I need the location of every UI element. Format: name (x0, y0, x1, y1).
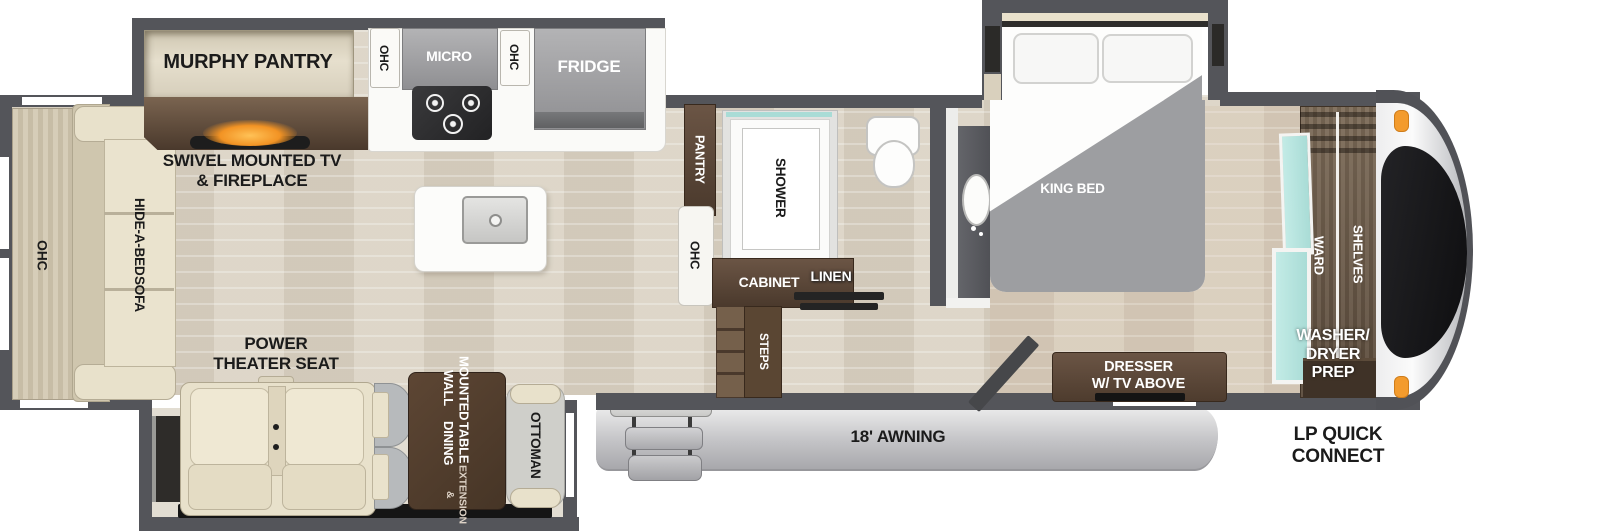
fireplace-glow (203, 120, 297, 146)
rear-left-window-1 (0, 157, 9, 249)
wardrobe-hanger-area (1300, 112, 1380, 160)
rear-left-window-2 (0, 258, 9, 350)
steps-label: STEPS (744, 310, 780, 392)
linen-label: LINEN (796, 264, 866, 288)
bath-counter-edge (946, 108, 958, 308)
mirror-door-upper (1279, 132, 1314, 255)
stove-burner-icon-3 (443, 114, 463, 134)
theater-seat-cushion-left (188, 464, 272, 510)
shower-text: SHOWER (772, 158, 788, 218)
sofa-label-line2: SOFA (131, 276, 147, 312)
theater-line1: POWER (244, 334, 307, 354)
micro-text: MICRO (426, 48, 472, 65)
dining-line2: DINING TABLE (441, 421, 472, 465)
vanity-faucet-icon (971, 226, 976, 231)
wall-rear-slide-left (0, 95, 12, 410)
dining-line1: WALL MOUNTED (441, 356, 472, 420)
marker-light-top-icon (1394, 110, 1409, 132)
cupholder-icon-2 (273, 444, 279, 450)
shower-glass-accent (726, 112, 832, 117)
fridge-text: FRIDGE (557, 57, 620, 77)
wall-bottomslide-left (139, 400, 152, 531)
rear-ohc-label: OHC (24, 215, 60, 295)
wall-bottomslide-bottom (139, 517, 579, 531)
wall-bedslide-top (982, 0, 1228, 13)
awning-label: 18' AWNING (798, 427, 998, 447)
wd-line3: PREP (1312, 364, 1355, 383)
bedroom-steps-tread-2 (716, 350, 744, 353)
slide-tv-icon (152, 416, 180, 502)
kitchen-ohc-left-text: OHC (377, 45, 391, 71)
washer-dryer-label: WASHER/ DRYER PREP (1280, 322, 1386, 388)
dresser-line1: DRESSER (1104, 359, 1173, 376)
theater-seat-label: POWER THEATER SEAT (190, 332, 362, 376)
theater-console (268, 386, 286, 476)
dining-chair-1-cushion (372, 392, 389, 438)
kitchen-ohc-right-text: OHC (507, 44, 521, 70)
theater-line2: THEATER SEAT (213, 354, 338, 374)
swivel-line1: SWIVEL MOUNTED TV (163, 151, 342, 171)
kitchen-ohc-right-label: OHC (500, 33, 528, 81)
pantry-text: PANTRY (692, 135, 707, 184)
fridge-label: FRIDGE (534, 56, 644, 78)
shelves-label: SHELVES (1343, 198, 1373, 310)
bedroom-steps-tread-3 (716, 372, 744, 375)
wd-line1: WASHER/ (1296, 327, 1369, 346)
cupholder-icon-1 (273, 424, 279, 430)
pillow-left-icon (1013, 33, 1099, 84)
nightstand-left (984, 74, 1001, 100)
awning-text: 18' AWNING (851, 427, 946, 447)
murphy-pantry-text: MURPHY PANTRY (163, 51, 332, 75)
theater-seat-cushion-right (282, 464, 366, 510)
vanity-sink-icon (962, 174, 991, 226)
bed-headwall-trim (1002, 13, 1208, 21)
dresser-label: DRESSER W/ TV ABOVE (1054, 356, 1223, 396)
sofa-label: HIDE-A-BED SOFA (106, 190, 172, 320)
dresser-line2: W/ TV ABOVE (1092, 376, 1185, 393)
bath-ohc-label: OHC (678, 210, 712, 300)
king-bed-label: KING BED (990, 180, 1155, 198)
murphy-pantry-label: MURPHY PANTRY (146, 48, 350, 78)
dining-chair-2-cushion (372, 454, 389, 500)
swivel-line2: & FIREPLACE (196, 171, 307, 191)
marker-light-bottom-icon (1394, 376, 1409, 398)
dining-line3: & EXTENSION (444, 465, 469, 524)
rv-floorplan: 18' AWNING LP QUICK CONNECT OHC (0, 0, 1600, 531)
stove-burner-icon-1 (426, 94, 444, 112)
dining-table-label: WALL MOUNTED DINING TABLE & EXTENSION (412, 376, 500, 504)
cabinet-text: CABINET (739, 274, 800, 291)
lp-line1: LP QUICK (1294, 424, 1383, 446)
lp-quick-connect-label: LP QUICK CONNECT (1278, 423, 1398, 469)
sofa-label-line1: HIDE-A-BED (131, 198, 147, 276)
kitchen-ohc-left-label: OHC (370, 32, 398, 84)
sofa-armrest-bottom (74, 364, 176, 400)
island-sink-drain-icon (489, 214, 502, 227)
toilet-bowl-icon (873, 140, 915, 188)
bedslide-window-right (1212, 24, 1224, 66)
king-bed-text: KING BED (1040, 181, 1104, 197)
micro-label: MICRO (402, 46, 496, 66)
theater-back-left (190, 388, 270, 466)
bed-foot: KING BED (990, 100, 1205, 292)
bottomslide-right-window (566, 413, 574, 497)
bedslide-window-left (985, 26, 1000, 72)
vanity-faucet-dot (979, 232, 983, 236)
linen-shelf-edge-1 (794, 292, 884, 300)
linen-text: LINEN (810, 268, 851, 285)
rear-ohc-text: OHC (34, 240, 51, 271)
shelves-text: SHELVES (1350, 225, 1365, 283)
ottoman-cushion-bottom (510, 488, 561, 508)
ottoman-label: OTTOMAN (514, 400, 556, 490)
ottoman-text: OTTOMAN (527, 412, 543, 479)
lp-line2: CONNECT (1292, 446, 1385, 468)
fridge-base-shadow (534, 112, 644, 128)
swivel-tv-label: SWIVEL MOUNTED TV & FIREPLACE (148, 148, 356, 194)
wall-bath-bedroom (930, 108, 946, 306)
theater-back-right (284, 388, 364, 466)
bath-ohc-text: OHC (687, 241, 702, 269)
pillow-right-icon (1102, 34, 1193, 83)
linen-shelf-edge-2 (800, 303, 878, 310)
entry-step-2 (625, 427, 703, 450)
pantry-label: PANTRY (684, 108, 714, 210)
wd-line2: DRYER (1306, 346, 1360, 365)
steps-text: STEPS (755, 333, 769, 370)
stove-burner-icon-2 (462, 94, 480, 112)
vanity-base-trim (946, 298, 990, 308)
bedroom-steps-tread-1 (716, 328, 744, 331)
dresser-tv-icon (1095, 393, 1185, 401)
shower-label: SHOWER (748, 132, 812, 244)
entry-step-3 (628, 455, 702, 481)
